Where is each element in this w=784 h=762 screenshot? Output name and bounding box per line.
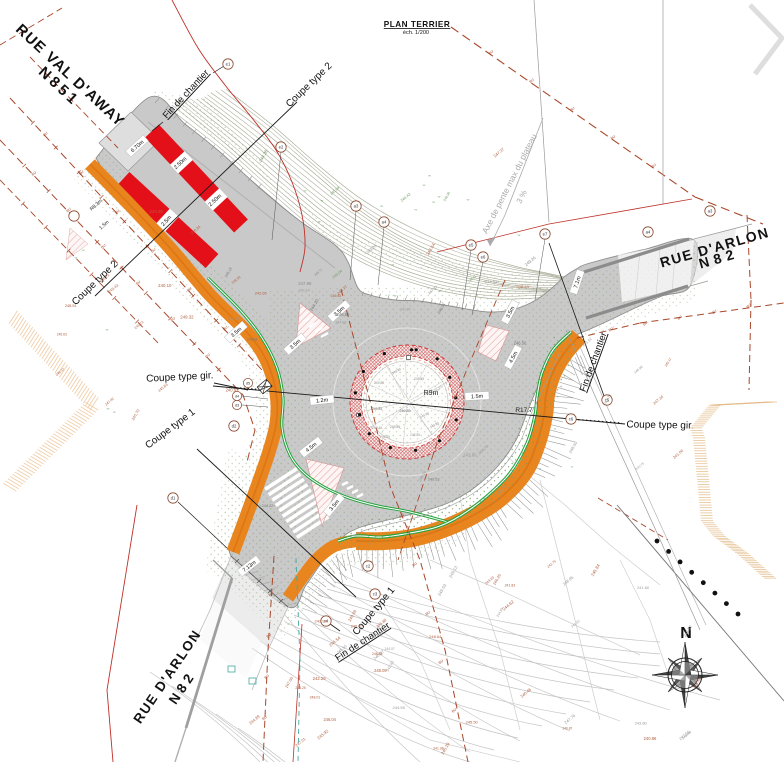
svg-text:248.93: 248.93 bbox=[247, 338, 257, 342]
svg-text:244.55: 244.55 bbox=[393, 705, 406, 710]
svg-text:e5: e5 bbox=[469, 243, 474, 248]
svg-text:249.85: 249.85 bbox=[380, 435, 390, 439]
svg-text:246.56: 246.56 bbox=[336, 312, 350, 317]
svg-text:249.85: 249.85 bbox=[372, 407, 382, 411]
svg-text:a3: a3 bbox=[708, 209, 713, 214]
svg-text:244.22: 244.22 bbox=[262, 504, 273, 508]
svg-text:244.86: 244.86 bbox=[335, 321, 346, 325]
svg-text:249.32: 249.32 bbox=[180, 315, 194, 320]
svg-text:240.84: 240.84 bbox=[372, 426, 382, 430]
svg-text:240.10: 240.10 bbox=[158, 283, 172, 288]
svg-text:a4: a4 bbox=[382, 220, 387, 225]
svg-text:248.01: 248.01 bbox=[310, 695, 321, 699]
svg-text:a4: a4 bbox=[646, 230, 651, 235]
svg-text:242.65: 242.65 bbox=[255, 290, 268, 295]
svg-text:1.5m: 1.5m bbox=[471, 394, 484, 401]
svg-text:242.14: 242.14 bbox=[298, 288, 309, 292]
svg-text:245.50: 245.50 bbox=[466, 720, 479, 725]
svg-text:249.85: 249.85 bbox=[374, 381, 384, 385]
svg-text:247.96: 247.96 bbox=[298, 281, 312, 286]
svg-text:241.83: 241.83 bbox=[505, 584, 516, 588]
svg-text:244.07: 244.07 bbox=[385, 647, 395, 651]
svg-text:240.87: 240.87 bbox=[562, 727, 572, 731]
svg-text:a3: a3 bbox=[354, 204, 359, 209]
svg-text:249.85: 249.85 bbox=[410, 433, 420, 437]
svg-text:246.70: 246.70 bbox=[351, 624, 364, 629]
svg-text:c2: c2 bbox=[366, 564, 371, 569]
svg-text:240.86: 240.86 bbox=[644, 736, 657, 741]
svg-text:d3: d3 bbox=[235, 404, 239, 408]
svg-text:d2: d2 bbox=[232, 424, 237, 429]
svg-text:242.29: 242.29 bbox=[313, 676, 327, 681]
svg-text:c6: c6 bbox=[569, 417, 574, 422]
svg-text:d1: d1 bbox=[171, 496, 176, 501]
svg-text:d4: d4 bbox=[235, 395, 239, 399]
svg-text:248.51: 248.51 bbox=[65, 303, 77, 308]
svg-text:PLAN TERRIER: PLAN TERRIER bbox=[384, 20, 451, 29]
svg-text:Coupe type gir.: Coupe type gir. bbox=[626, 419, 693, 431]
svg-text:243.25: 243.25 bbox=[295, 686, 306, 690]
svg-text:249.85: 249.85 bbox=[390, 425, 400, 429]
svg-text:248.85: 248.85 bbox=[372, 652, 382, 656]
svg-text:e7: e7 bbox=[543, 232, 548, 237]
svg-text:240.92: 240.92 bbox=[226, 388, 239, 393]
svg-text:241.60: 241.60 bbox=[637, 585, 650, 590]
svg-text:246.04: 246.04 bbox=[323, 717, 336, 722]
svg-text:246.23: 246.23 bbox=[516, 284, 529, 289]
svg-text:e1: e1 bbox=[226, 62, 231, 67]
svg-text:245.63: 245.63 bbox=[57, 332, 67, 336]
svg-text:246.50: 246.50 bbox=[514, 341, 527, 346]
svg-text:248.64: 248.64 bbox=[429, 634, 442, 639]
svg-text:241.99: 241.99 bbox=[401, 308, 411, 312]
svg-text:240.59: 240.59 bbox=[373, 633, 383, 637]
svg-text:243.80: 243.80 bbox=[463, 453, 477, 458]
svg-text:c3: c3 bbox=[373, 592, 378, 597]
svg-text:e2: e2 bbox=[279, 145, 284, 150]
svg-text:éch. 1/200: éch. 1/200 bbox=[403, 30, 429, 36]
svg-text:249.85: 249.85 bbox=[400, 409, 411, 413]
svg-text:243.27: 243.27 bbox=[228, 317, 239, 321]
svg-text:242.94: 242.94 bbox=[315, 618, 328, 623]
svg-text:e6: e6 bbox=[481, 255, 486, 260]
svg-text:243.49: 243.49 bbox=[150, 209, 164, 214]
svg-text:243.80: 243.80 bbox=[635, 721, 648, 726]
svg-text:241.33: 241.33 bbox=[485, 279, 498, 284]
svg-text:d5: d5 bbox=[246, 382, 250, 386]
svg-text:249.85: 249.85 bbox=[414, 377, 424, 381]
svg-text:249.53: 249.53 bbox=[428, 477, 440, 481]
